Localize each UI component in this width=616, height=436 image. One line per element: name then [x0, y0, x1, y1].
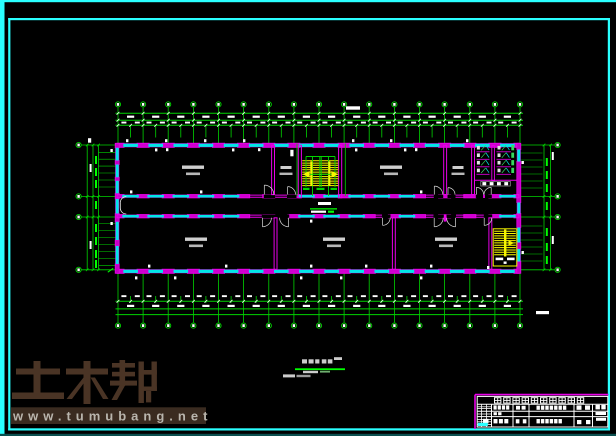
svg-text:www.tumubang.net: www.tumubang.net [12, 409, 212, 424]
